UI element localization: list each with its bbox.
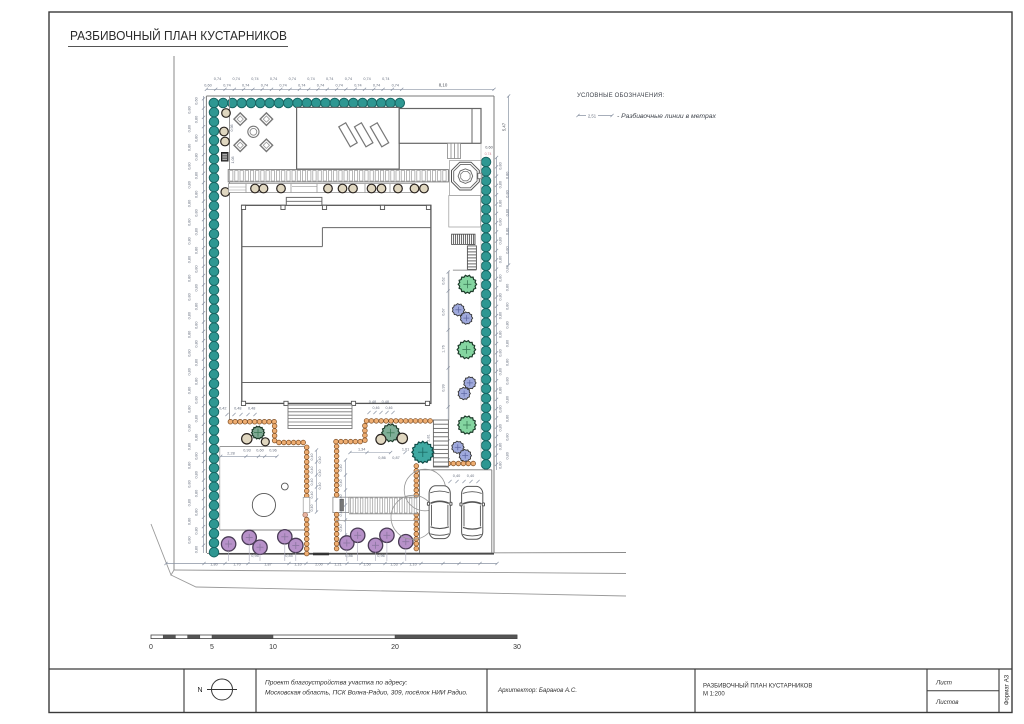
svg-text:0,80: 0,80 xyxy=(195,284,199,291)
svg-text:0,80: 0,80 xyxy=(188,312,192,319)
svg-text:0,40: 0,40 xyxy=(453,474,460,478)
svg-text:1,10: 1,10 xyxy=(409,563,416,567)
svg-text:0,80: 0,80 xyxy=(499,237,503,244)
svg-text:0,96: 0,96 xyxy=(377,554,384,558)
svg-text:0,74: 0,74 xyxy=(214,77,221,81)
svg-text:0,80: 0,80 xyxy=(499,462,503,469)
svg-text:0,46: 0,46 xyxy=(386,406,393,410)
svg-text:0,80: 0,80 xyxy=(499,200,503,207)
svg-text:0,80: 0,80 xyxy=(195,378,199,385)
svg-text:0,80: 0,80 xyxy=(188,499,192,506)
svg-text:1,50: 1,50 xyxy=(363,563,370,567)
svg-text:0,80: 0,80 xyxy=(506,452,510,459)
svg-text:0,98: 0,98 xyxy=(230,125,234,132)
svg-text:0,80: 0,80 xyxy=(195,527,199,534)
svg-text:1,53: 1,53 xyxy=(390,563,397,567)
svg-text:1,08: 1,08 xyxy=(231,157,235,164)
svg-text:0,40: 0,40 xyxy=(339,480,343,487)
svg-text:0: 0 xyxy=(149,644,153,651)
svg-text:0,80: 0,80 xyxy=(188,256,192,263)
svg-text:0,80: 0,80 xyxy=(195,340,199,347)
svg-text:0,60: 0,60 xyxy=(485,146,492,150)
svg-text:0,80: 0,80 xyxy=(195,546,199,553)
svg-text:0,80: 0,80 xyxy=(195,471,199,478)
svg-text:0,40: 0,40 xyxy=(310,479,314,486)
svg-text:Листов: Листов xyxy=(935,699,959,706)
svg-text:0,80: 0,80 xyxy=(195,247,199,254)
svg-text:0,93: 0,93 xyxy=(243,449,250,453)
svg-text:2,00: 2,00 xyxy=(315,563,322,567)
svg-text:0,40: 0,40 xyxy=(318,483,322,490)
svg-text:0,62: 0,62 xyxy=(442,277,446,284)
svg-text:0,80: 0,80 xyxy=(188,125,192,132)
svg-text:0,48: 0,48 xyxy=(234,407,241,411)
svg-text:0,74: 0,74 xyxy=(373,83,380,87)
svg-text:0,80: 0,80 xyxy=(499,368,503,375)
svg-text:0,60: 0,60 xyxy=(204,83,211,87)
svg-text:0,74: 0,74 xyxy=(242,83,249,87)
svg-text:0,80: 0,80 xyxy=(499,162,503,169)
svg-text:0,80: 0,80 xyxy=(188,106,192,113)
svg-text:1,01: 1,01 xyxy=(402,448,409,452)
svg-text:20: 20 xyxy=(391,644,399,651)
svg-text:0,74: 0,74 xyxy=(392,83,399,87)
svg-text:1,76: 1,76 xyxy=(442,345,446,352)
svg-text:0,74: 0,74 xyxy=(233,77,240,81)
svg-text:РАЗБИВОЧНЫЙ ПЛАН КУСТАРНИКОВ: РАЗБИВОЧНЫЙ ПЛАН КУСТАРНИКОВ xyxy=(703,682,812,690)
svg-text:0,86: 0,86 xyxy=(378,456,385,460)
svg-text:0,80: 0,80 xyxy=(499,293,503,300)
svg-text:0,80: 0,80 xyxy=(188,162,192,169)
svg-text:1,70: 1,70 xyxy=(233,563,240,567)
svg-text:0,48: 0,48 xyxy=(382,400,389,404)
svg-text:0,67: 0,67 xyxy=(442,308,446,315)
svg-text:5: 5 xyxy=(210,644,214,651)
svg-text:N: N xyxy=(197,687,202,694)
svg-text:0,48: 0,48 xyxy=(369,400,376,404)
svg-text:0,80: 0,80 xyxy=(195,191,199,198)
svg-text:0,80: 0,80 xyxy=(499,387,503,394)
svg-text:0,80: 0,80 xyxy=(499,256,503,263)
svg-text:0,80: 0,80 xyxy=(499,181,503,188)
svg-text:0,80: 0,80 xyxy=(188,219,192,226)
svg-text:0,40: 0,40 xyxy=(310,492,314,499)
svg-text:30: 30 xyxy=(513,644,521,651)
svg-text:0,40: 0,40 xyxy=(310,505,314,512)
svg-text:0,46: 0,46 xyxy=(373,406,380,410)
svg-text:0,80: 0,80 xyxy=(195,265,199,272)
svg-text:0,74: 0,74 xyxy=(261,83,268,87)
svg-text:УСЛОВНЫЕ ОБОЗНАЧЕНИЯ:: УСЛОВНЫЕ ОБОЗНАЧЕНИЯ: xyxy=(577,93,665,99)
svg-text:0,80: 0,80 xyxy=(195,415,199,422)
svg-text:0,74: 0,74 xyxy=(270,77,277,81)
svg-text:0,80: 0,80 xyxy=(195,116,199,123)
svg-text:0,80: 0,80 xyxy=(188,200,192,207)
svg-text:0,80: 0,80 xyxy=(188,275,192,282)
svg-text:0,40: 0,40 xyxy=(339,495,343,502)
svg-text:0,74: 0,74 xyxy=(251,77,258,81)
svg-text:0,96: 0,96 xyxy=(269,449,276,453)
svg-text:0,42: 0,42 xyxy=(219,407,226,411)
svg-text:0,74: 0,74 xyxy=(289,77,296,81)
svg-text:0,80: 0,80 xyxy=(506,321,510,328)
svg-text:0,80: 0,80 xyxy=(499,424,503,431)
svg-text:0,40: 0,40 xyxy=(318,470,322,477)
svg-text:0,74: 0,74 xyxy=(326,77,333,81)
svg-text:8,10: 8,10 xyxy=(439,83,448,88)
svg-text:0,80: 0,80 xyxy=(499,405,503,412)
svg-text:2,81: 2,81 xyxy=(427,434,431,441)
svg-text:0,80: 0,80 xyxy=(499,312,503,319)
svg-text:Формат А3: Формат А3 xyxy=(1005,674,1011,705)
svg-text:0,80: 0,80 xyxy=(188,349,192,356)
svg-text:0,80: 0,80 xyxy=(506,433,510,440)
svg-text:0,40: 0,40 xyxy=(310,467,314,474)
svg-text:0,80: 0,80 xyxy=(195,135,199,142)
svg-text:0,80: 0,80 xyxy=(188,331,192,338)
svg-text:0,80: 0,80 xyxy=(506,303,510,310)
svg-text:Проект благоустройства участка: Проект благоустройства участка по адресу… xyxy=(265,679,407,687)
svg-text:0,80: 0,80 xyxy=(195,396,199,403)
svg-text:0,80: 0,80 xyxy=(195,228,199,235)
svg-text:0,80: 0,80 xyxy=(195,452,199,459)
svg-text:0,80: 0,80 xyxy=(188,518,192,525)
svg-text:Лист: Лист xyxy=(935,680,952,687)
svg-text:0,74: 0,74 xyxy=(298,83,305,87)
svg-text:0,74: 0,74 xyxy=(307,77,314,81)
svg-text:0,40: 0,40 xyxy=(339,525,343,532)
svg-text:0,80: 0,80 xyxy=(188,424,192,431)
svg-text:0,85: 0,85 xyxy=(285,554,292,558)
svg-text:0,80: 0,80 xyxy=(188,387,192,394)
svg-text:0,80: 0,80 xyxy=(506,284,510,291)
svg-text:0,74: 0,74 xyxy=(363,77,370,81)
svg-text:0,74: 0,74 xyxy=(485,152,492,156)
svg-text:10: 10 xyxy=(269,644,277,651)
svg-text:0,80: 0,80 xyxy=(499,349,503,356)
svg-text:0,40: 0,40 xyxy=(467,474,474,478)
svg-text:0,40: 0,40 xyxy=(310,454,314,461)
svg-text:0,80: 0,80 xyxy=(195,322,199,329)
svg-text:0,80: 0,80 xyxy=(195,209,199,216)
svg-text:0,80: 0,80 xyxy=(188,462,192,469)
svg-text:1,21: 1,21 xyxy=(334,563,341,567)
svg-text:0,87: 0,87 xyxy=(392,456,399,460)
svg-text:1,87: 1,87 xyxy=(264,563,271,567)
svg-text:0,74: 0,74 xyxy=(279,83,286,87)
svg-text:1,10: 1,10 xyxy=(294,563,301,567)
svg-text:0,40: 0,40 xyxy=(339,510,343,517)
svg-text:0,80: 0,80 xyxy=(188,536,192,543)
svg-text:0,80: 0,80 xyxy=(188,144,192,151)
svg-text:М 1:200: М 1:200 xyxy=(703,692,725,698)
svg-text:1,80: 1,80 xyxy=(210,563,217,567)
svg-text:0,80: 0,80 xyxy=(506,415,510,422)
svg-text:- Разбивочные линии в метрах: - Разбивочные линии в метрах xyxy=(617,112,717,120)
svg-text:0,80: 0,80 xyxy=(188,480,192,487)
svg-text:0,80: 0,80 xyxy=(499,331,503,338)
svg-text:0,80: 0,80 xyxy=(499,443,503,450)
svg-text:0,80: 0,80 xyxy=(188,443,192,450)
svg-text:0,80: 0,80 xyxy=(195,303,199,310)
svg-text:0,40: 0,40 xyxy=(339,465,343,472)
svg-text:0,80: 0,80 xyxy=(195,172,199,179)
svg-text:0,80: 0,80 xyxy=(506,359,510,366)
svg-text:0,74: 0,74 xyxy=(382,77,389,81)
svg-text:0,74: 0,74 xyxy=(345,77,352,81)
svg-text:0,80: 0,80 xyxy=(195,434,199,441)
svg-text:0,86: 0,86 xyxy=(345,554,352,558)
svg-text:2,28: 2,28 xyxy=(227,452,234,456)
svg-text:0,60: 0,60 xyxy=(195,97,199,104)
svg-text:0,99: 0,99 xyxy=(442,384,446,391)
svg-text:Архитектор: Баранов А.С.: Архитектор: Баранов А.С. xyxy=(497,687,577,694)
svg-text:0,80: 0,80 xyxy=(188,406,192,413)
svg-text:0,74: 0,74 xyxy=(317,83,324,87)
svg-text:РАЗБИВОЧНЫЙ ПЛАН КУСТАРНИКОВ: РАЗБИВОЧНЫЙ ПЛАН КУСТАРНИКОВ xyxy=(70,28,287,43)
svg-text:0,80: 0,80 xyxy=(499,218,503,225)
svg-text:0,80: 0,80 xyxy=(188,368,192,375)
svg-text:0,80: 0,80 xyxy=(195,153,199,160)
svg-text:1,34: 1,34 xyxy=(358,448,365,452)
svg-text:0,80: 0,80 xyxy=(195,509,199,516)
svg-text:0,80: 0,80 xyxy=(195,359,199,366)
svg-text:2,51: 2,51 xyxy=(588,113,597,118)
svg-text:0,80: 0,80 xyxy=(506,340,510,347)
svg-text:0,74: 0,74 xyxy=(336,83,343,87)
svg-text:0,80: 0,80 xyxy=(499,275,503,282)
svg-text:Московская область, ПСК Волна-: Московская область, ПСК Волна-Радио, 309… xyxy=(265,689,468,697)
svg-text:0,74: 0,74 xyxy=(354,83,361,87)
svg-text:0,80: 0,80 xyxy=(188,181,192,188)
svg-text:0,80: 0,80 xyxy=(506,377,510,384)
svg-text:0,80: 0,80 xyxy=(195,490,199,497)
svg-text:0,80: 0,80 xyxy=(188,293,192,300)
svg-text:5,47: 5,47 xyxy=(502,122,507,131)
svg-text:0,80: 0,80 xyxy=(506,396,510,403)
svg-text:0,80: 0,80 xyxy=(188,237,192,244)
svg-text:0,60: 0,60 xyxy=(256,449,263,453)
svg-text:0,74: 0,74 xyxy=(223,83,230,87)
svg-text:0,40: 0,40 xyxy=(318,457,322,464)
svg-text:0,48: 0,48 xyxy=(248,407,255,411)
